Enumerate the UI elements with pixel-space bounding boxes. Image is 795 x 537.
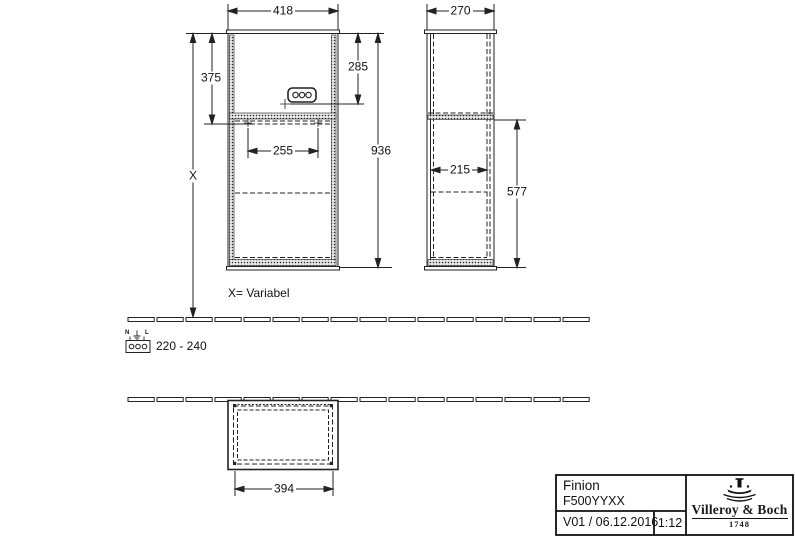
drawing-canvas: [0, 0, 795, 537]
voltage-label: 220 - 240: [156, 339, 207, 353]
dim-label-lower-height: 577: [505, 186, 529, 199]
wall-line-upper: [128, 318, 589, 322]
titleblock-version: V01 / 06.12.2016: [563, 515, 658, 529]
power-socket-icon: [288, 88, 316, 102]
titleblock-product: Finion: [563, 478, 600, 493]
dim-label-inner-width: 255: [271, 145, 295, 158]
variable-note: X= Variabel: [228, 286, 289, 300]
dim-label-plan-width: 394: [272, 483, 296, 496]
dim-label-front-width: 418: [271, 5, 295, 18]
drawing-sheet: 418 270 375 285 255 936 X 215 577 394 X=…: [0, 0, 795, 537]
dim-label-upper-height: 375: [199, 72, 223, 85]
titleblock-article: F500YYXX: [563, 494, 625, 508]
dim-label-side-depth: 270: [448, 5, 472, 18]
live-label: L: [145, 330, 149, 336]
neutral-label: N: [125, 330, 129, 336]
brand-name: Villeroy & Boch: [692, 502, 788, 519]
wall-line-lower: [128, 398, 589, 402]
brand-year: 1748: [729, 519, 750, 529]
titleblock-scale: 1:12: [658, 516, 682, 530]
dim-label-socket-height: 285: [346, 61, 370, 74]
dim-label-variable: X: [187, 170, 199, 183]
dim-label-inner-depth: 215: [448, 164, 472, 177]
plan-view: [228, 401, 338, 470]
side-view: [425, 30, 497, 270]
dim-label-total-height: 936: [369, 145, 393, 158]
